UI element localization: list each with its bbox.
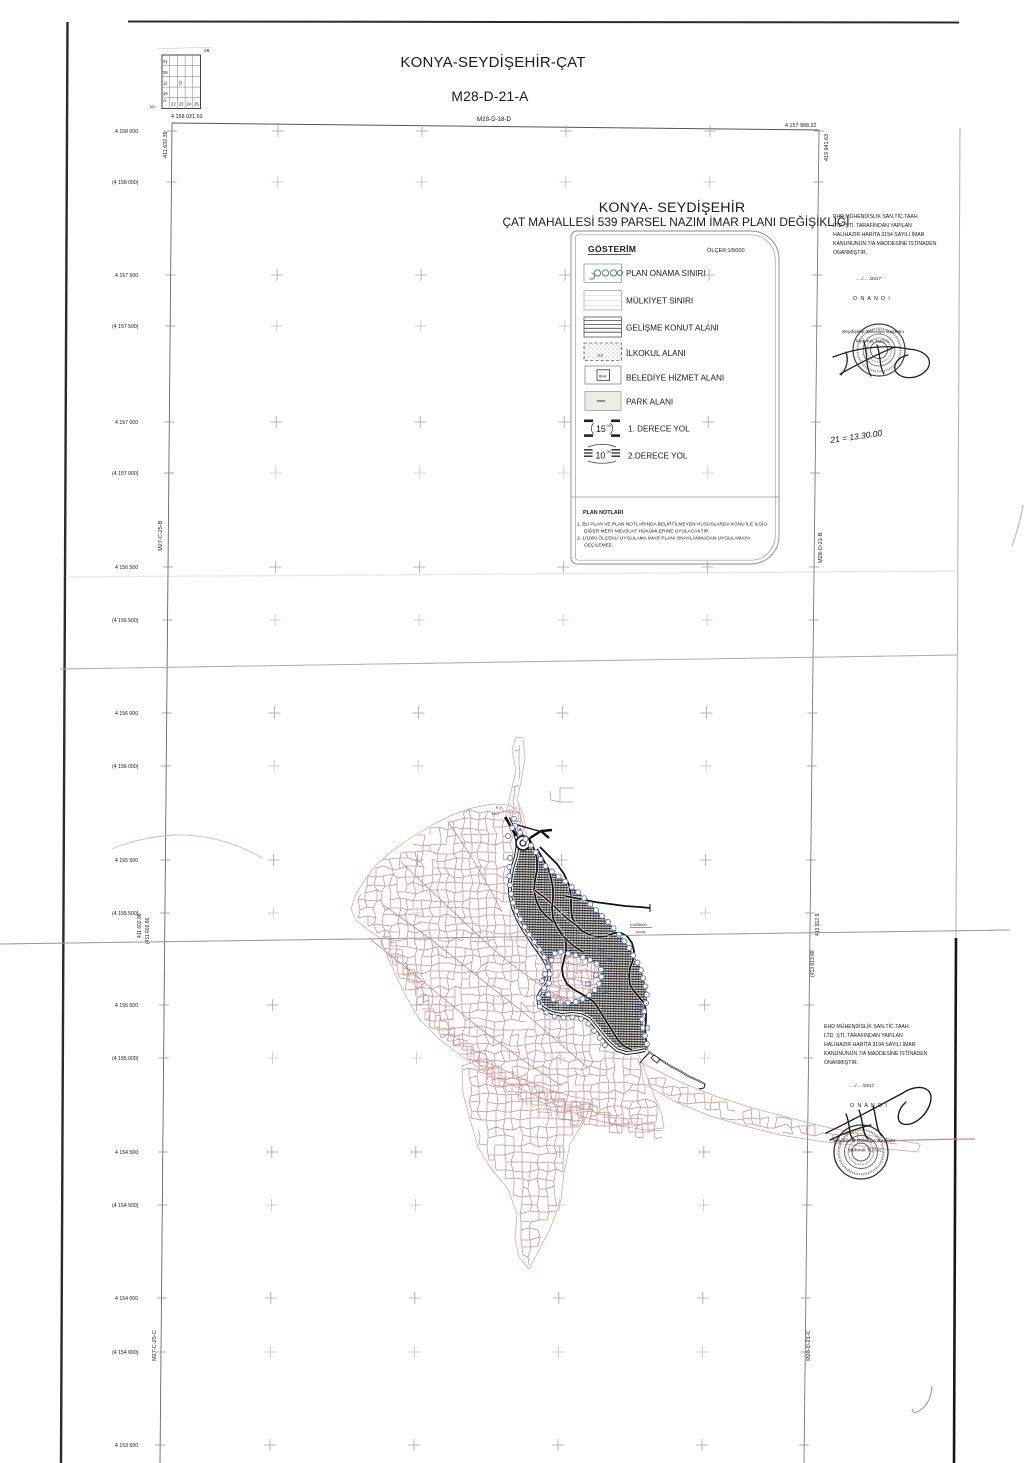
svg-text:15: 15 (596, 424, 606, 434)
svg-text:21: 21 (163, 99, 167, 103)
svg-text:06: 06 (163, 70, 168, 75)
svg-text:ONANMIŞTIR.: ONANMIŞTIR. (833, 250, 867, 256)
svg-text:Seydişehir Belediye Başkanı: Seydişehir Belediye Başkanı (833, 1138, 895, 1144)
svg-text:01: 01 (163, 59, 168, 64)
svg-text:4 154 000: 4 154 000 (115, 1296, 138, 1302)
svg-text:00: 00 (607, 424, 611, 428)
svg-text:LTD. ŞTİ. TARAFINDAN YAPILAN: LTD. ŞTİ. TARAFINDAN YAPILAN (824, 1032, 903, 1039)
svg-text:İLKOKUL ALANI: İLKOKUL ALANI (626, 348, 686, 358)
svg-text:(4 156 500): (4 156 500) (112, 618, 139, 624)
svg-text:24: 24 (186, 102, 191, 107)
svg-text:(411 602.86: (411 602.86 (145, 917, 151, 944)
svg-text:HALİHAZIR HARİTA 3194 SAYILI İ: HALİHAZIR HARİTA 3194 SAYILI İMAR (824, 1041, 916, 1048)
svg-text:413 941.63: 413 941.63 (824, 134, 830, 161)
svg-text:4 157 988.32: 4 157 988.32 (785, 123, 816, 129)
svg-text:ONANMIŞTIR.: ONANMIŞTIR. (824, 1060, 858, 1066)
svg-text:EHD MÜHENDİSLİK SAN.TİC.TAAH.: EHD MÜHENDİSLİK SAN.TİC.TAAH. (824, 1023, 910, 1030)
svg-text:M27-C-25-B: M27-C-25-B (158, 520, 164, 551)
svg-text:25: 25 (194, 102, 199, 107)
svg-text:M28-D-21-A: M28-D-21-A (451, 89, 529, 104)
svg-text:(4 154 000): (4 154 000) (112, 1350, 139, 1356)
svg-text:M28-D-18-D: M28-D-18-D (477, 116, 512, 123)
svg-text:HALİHAZIR HARİTA 3194 SAYILI İ: HALİHAZIR HARİTA 3194 SAYILI İMAR (833, 231, 925, 238)
svg-text:(4 154 500): (4 154 500) (112, 1203, 139, 1209)
svg-text:...../...../2017: ...../...../2017 (849, 1083, 875, 1088)
svg-text:11: 11 (163, 81, 168, 86)
svg-text:1. DERECE YOL: 1. DERECE YOL (628, 425, 690, 434)
svg-text:(4 156 000): (4 156 000) (112, 764, 139, 770)
svg-text:GÖSTERİM: GÖSTERİM (588, 244, 636, 254)
svg-text:1. BU PLAN VE PLAN NOTLARINDA: 1. BU PLAN VE PLAN NOTLARINDA BELİRTİLME… (577, 521, 768, 528)
svg-text:ÇAT MAHALLESİ 539 PARSEL NAZIM: ÇAT MAHALLESİ 539 PARSEL NAZIM İMAR PLAN… (502, 215, 849, 229)
svg-text:4 157 500: 4 157 500 (115, 273, 138, 279)
svg-text:PLAN ONAMA SINIRI: PLAN ONAMA SINIRI (626, 269, 706, 278)
svg-text:(4 155 500): (4 155 500) (112, 911, 139, 917)
svg-text:M27-C-25-C: M27-C-25-C (152, 1330, 158, 1361)
svg-text:16: 16 (163, 91, 168, 96)
svg-text:KONYA- SEYDİŞEHİR: KONYA- SEYDİŞEHİR (599, 198, 746, 216)
svg-text:4 156 000: 4 156 000 (115, 711, 138, 717)
svg-text:O N A N D I: O N A N D I (853, 296, 891, 302)
svg-text:KONYA-SEYDİŞEHİR-ÇAT: KONYA-SEYDİŞEHİR-ÇAT (400, 53, 585, 71)
svg-text:P.J: P.J (496, 806, 501, 810)
svg-text:PLAN NOTLARI: PLAN NOTLARI (583, 510, 624, 516)
svg-text:BHA: BHA (599, 375, 607, 379)
svg-text:Mehmet TUTAL: Mehmet TUTAL (848, 1148, 882, 1154)
svg-text:MÜLKİYET SINIRI: MÜLKİYET SINIRI (626, 296, 693, 306)
svg-text:İLK: İLK (598, 353, 604, 358)
svg-text:4 156 500: 4 156 500 (115, 565, 138, 571)
svg-text:NAZIM: NAZIM (636, 930, 646, 934)
svg-text:4 158 000: 4 158 000 (115, 129, 138, 135)
svg-text:LTD. ŞTİ. TARAFINDAN YAPILAN: LTD. ŞTİ. TARAFINDAN YAPILAN (833, 222, 912, 229)
svg-text:M28-D-21-C: M28-D-21-C (806, 1330, 812, 1361)
svg-text:Seydişehir Belediye Başkanı: Seydişehir Belediye Başkanı (842, 329, 904, 335)
svg-text:(413 913.88: (413 913.88 (810, 950, 816, 977)
svg-text:22: 22 (171, 102, 176, 107)
svg-text:KANUNUNUN 7/A MADDESİNE İSTİNA: KANUNUNUN 7/A MADDESİNE İSTİNADEN (824, 1050, 928, 1057)
svg-text:4 155 500: 4 155 500 (115, 858, 138, 864)
svg-text:M28-D-21-B: M28-D-21-B (818, 532, 824, 563)
svg-text:4 155 000: 4 155 000 (115, 1003, 138, 1009)
svg-text:28: 28 (204, 48, 210, 54)
svg-text:23: 23 (179, 102, 184, 107)
svg-text:PARK ALANI: PARK ALANI (626, 398, 673, 407)
svg-text:N.M38000: N.M38000 (630, 923, 647, 927)
svg-text:M1:: M1: (150, 105, 156, 109)
svg-text:D: D (179, 81, 182, 86)
svg-text:EHD MÜHENDİSLİK SAN.TİC.TAAH.: EHD MÜHENDİSLİK SAN.TİC.TAAH. (833, 213, 919, 220)
svg-text:(4 157 500): (4 157 500) (112, 324, 139, 330)
svg-text:00: 00 (607, 450, 611, 454)
svg-text:4 154 500: 4 154 500 (115, 1150, 138, 1156)
svg-text:...../...../2017: ...../...../2017 (856, 276, 882, 281)
svg-text:(4 157 000): (4 157 000) (112, 471, 139, 477)
svg-text:4 153 500: 4 153 500 (115, 1443, 138, 1449)
svg-text:4 157 000: 4 157 000 (115, 420, 138, 426)
svg-text:2.DERECE YOL: 2.DERECE YOL (628, 452, 688, 461)
svg-text:(4 155 000): (4 155 000) (112, 1056, 139, 1062)
svg-text:2. 1/1000 ÖLÇEKLİ UYGULAMA: 2. 1/1000 ÖLÇEKLİ UYGULAMA İMAR PLANI ON… (577, 535, 751, 542)
svg-text:DİĞER MER'İ MEVZUAT HÜKÜMLERİN: DİĞER MER'İ MEVZUAT HÜKÜMLERİNE UYULACAK… (584, 528, 710, 535)
svg-text:10: 10 (596, 451, 606, 461)
svg-text:ÖLÇEK:1/5000: ÖLÇEK:1/5000 (707, 247, 745, 254)
svg-text:GELİŞME KONUT ALANI: GELİŞME KONUT ALANI (626, 323, 719, 333)
svg-text:GEÇİLEMEZ.: GEÇİLEMEZ. (584, 542, 613, 549)
svg-text:Mehmet TUTAL: Mehmet TUTAL (856, 339, 890, 345)
svg-text:531/2: 531/2 (492, 812, 499, 816)
svg-text:BELEDİYE HİZMET ALANI: BELEDİYE HİZMET ALANI (626, 373, 724, 383)
svg-text:(4 158 000): (4 158 000) (112, 180, 139, 186)
svg-text:4 158 021.53: 4 158 021.53 (171, 114, 202, 120)
svg-text:411 632.39: 411 632.39 (163, 131, 169, 158)
svg-text:411 602.88: 411 602.88 (137, 913, 143, 938)
svg-text:KANUNUNUN 7/A MADDESİNE İSTİNA: KANUNUNUN 7/A MADDESİNE İSTİNADEN (833, 240, 937, 247)
